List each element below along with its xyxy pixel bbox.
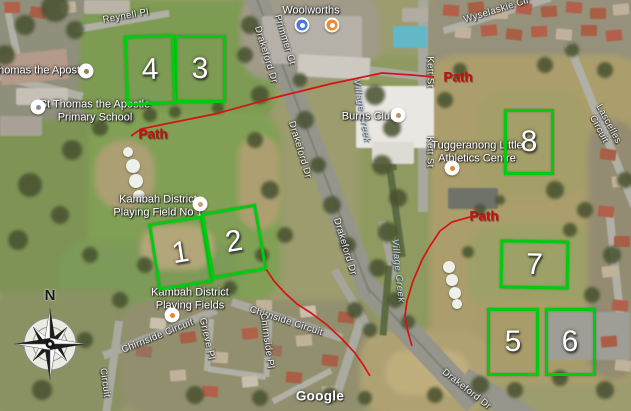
athletics-centre-icon-glyph	[450, 166, 455, 171]
house	[505, 28, 522, 41]
tree-cluster	[8, 230, 28, 250]
tree-cluster	[82, 247, 98, 263]
tree-cluster	[471, 376, 489, 394]
tree-cluster	[495, 195, 505, 205]
tree-cluster	[112, 292, 128, 308]
tree-cluster	[437, 92, 453, 108]
tree-cluster	[223, 281, 237, 295]
shopping-cart-icon	[295, 18, 310, 33]
house	[443, 4, 460, 16]
tree-cluster	[577, 202, 593, 218]
house	[321, 354, 338, 367]
playing-field-icon-glyph	[198, 202, 203, 207]
tree-cluster	[251, 86, 269, 104]
building	[84, 0, 130, 14]
tree-cluster	[453, 63, 467, 77]
storage-tank	[449, 287, 461, 299]
house	[614, 359, 631, 372]
tree-cluster	[51, 206, 69, 224]
field-number: 3	[192, 52, 209, 86]
storage-tank	[446, 274, 458, 286]
tree-cluster	[322, 387, 338, 403]
building	[448, 188, 498, 209]
athletics-centre-icon	[445, 161, 460, 176]
tree-cluster	[596, 381, 614, 399]
field-box-7: 7	[499, 239, 569, 289]
church-icon	[79, 64, 94, 79]
field-number: 8	[521, 125, 538, 159]
field-number: 2	[223, 223, 245, 259]
house	[202, 385, 219, 397]
tree-cluster	[474, 204, 486, 216]
house	[612, 3, 629, 16]
burns-club-icon	[391, 108, 406, 123]
school-icon	[31, 100, 46, 115]
tree-cluster	[365, 85, 385, 105]
restaurant-icon	[325, 18, 340, 33]
house	[296, 334, 313, 346]
tree-cluster	[372, 155, 392, 175]
house	[241, 375, 258, 388]
tree-cluster	[387, 292, 403, 308]
field-box-5: 5	[487, 308, 539, 376]
tree-cluster	[277, 227, 293, 243]
tree-cluster	[427, 387, 443, 403]
house	[601, 335, 618, 347]
tree-cluster	[563, 223, 577, 237]
satellite-map: Reynell PlPrimmer CtDrakeford DrDrakefor…	[0, 0, 631, 411]
house	[286, 371, 303, 383]
burns-club-icon-glyph	[396, 113, 401, 118]
storage-tank	[129, 174, 143, 188]
house	[601, 265, 618, 278]
field-number: 5	[505, 325, 522, 359]
house	[531, 26, 548, 38]
field-box-6: 6	[545, 308, 596, 376]
tree-cluster	[369, 259, 387, 277]
house	[455, 27, 472, 39]
tree-cluster	[310, 157, 326, 173]
tree-cluster	[247, 132, 263, 148]
house	[606, 29, 623, 41]
house	[150, 317, 167, 329]
house	[612, 299, 629, 311]
tree-cluster	[237, 47, 253, 63]
house	[515, 2, 532, 15]
house	[556, 28, 573, 40]
storage-tank	[123, 147, 133, 157]
tree-cluster	[584, 287, 600, 303]
shopping-cart-icon-glyph	[300, 23, 305, 28]
field-number: 7	[525, 247, 542, 281]
field-number: 4	[141, 53, 159, 88]
tree-cluster	[296, 111, 314, 129]
tree-cluster	[293, 73, 307, 87]
house	[599, 148, 616, 161]
tree-cluster	[169, 106, 181, 118]
tree-cluster	[507, 382, 523, 398]
tree-cluster	[62, 140, 82, 160]
tree-cluster	[137, 257, 153, 273]
tree-cluster	[261, 181, 279, 199]
house	[135, 345, 152, 358]
tree-cluster	[597, 62, 613, 78]
tree-cluster	[462, 246, 474, 258]
house	[179, 331, 196, 344]
storage-tank	[133, 190, 145, 202]
tree-cluster	[252, 390, 268, 406]
tree-cluster	[358, 391, 372, 405]
tree-cluster	[122, 112, 134, 124]
house	[541, 5, 558, 17]
tree-cluster	[18, 173, 42, 197]
house	[4, 2, 20, 13]
building	[297, 54, 370, 80]
house	[597, 205, 614, 218]
building	[402, 8, 428, 22]
storage-tank	[452, 299, 462, 309]
restaurant-icon-glyph	[330, 23, 335, 28]
storage-tank	[443, 261, 455, 273]
field-number: 6	[562, 325, 579, 359]
tree-cluster	[565, 43, 579, 57]
house	[492, 8, 508, 19]
school-icon-glyph	[36, 105, 41, 110]
building	[0, 116, 42, 136]
house	[468, 1, 485, 13]
tree-cluster	[77, 332, 93, 348]
house	[242, 327, 259, 339]
house	[481, 24, 498, 36]
tree-cluster	[32, 380, 52, 400]
tree-cluster	[66, 21, 84, 39]
storage-tank	[126, 159, 140, 173]
church-icon-glyph	[84, 69, 89, 74]
field-box-2: 2	[201, 203, 268, 279]
tree-cluster	[401, 315, 415, 329]
tree-cluster	[15, 15, 35, 35]
field-box-3: 3	[174, 35, 226, 103]
building	[393, 26, 427, 48]
field-box-8: 8	[504, 109, 554, 175]
tree-cluster	[363, 323, 377, 337]
tree-cluster	[186, 386, 204, 404]
tree-cluster	[603, 246, 621, 264]
house	[566, 1, 583, 13]
house	[265, 344, 282, 357]
field-box-4: 4	[124, 34, 176, 106]
tree-cluster	[92, 120, 108, 136]
playing-field-icon	[193, 197, 208, 212]
house	[212, 351, 229, 363]
tree-cluster	[323, 196, 341, 214]
tree-cluster	[143, 108, 157, 122]
tree-cluster	[389, 189, 407, 207]
house	[614, 236, 630, 247]
tree-cluster	[241, 16, 259, 34]
tree-cluster	[340, 237, 356, 253]
house	[256, 300, 272, 311]
tree-cluster	[378, 222, 398, 242]
house	[590, 8, 606, 19]
tree-cluster	[537, 57, 553, 73]
tree-cluster	[212, 102, 224, 114]
tree-cluster	[347, 302, 363, 318]
playing-fields-icon-glyph	[170, 313, 175, 318]
field-number: 1	[169, 235, 191, 271]
playing-fields-icon	[165, 308, 180, 323]
tree-cluster	[546, 181, 564, 199]
tree-cluster	[617, 172, 631, 188]
house	[581, 25, 597, 36]
house	[300, 305, 317, 317]
house	[170, 369, 187, 381]
